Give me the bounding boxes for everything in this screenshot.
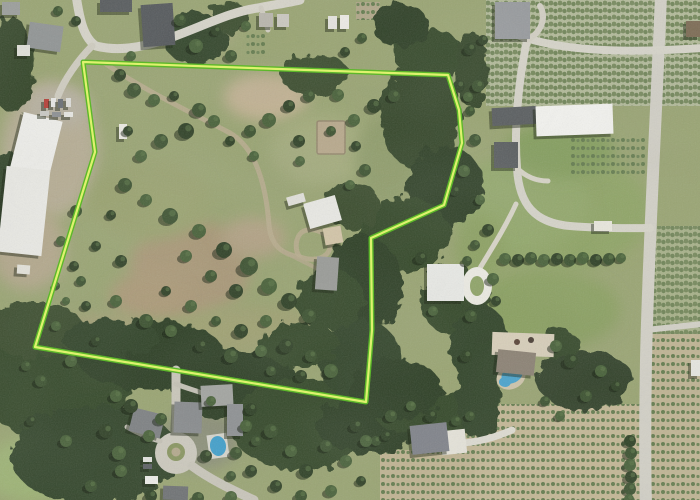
layer-photo-grain <box>0 0 700 500</box>
aerial-imagery-viewport[interactable] <box>0 0 700 500</box>
satellite-image <box>0 0 700 500</box>
mottle-overlay <box>0 0 700 500</box>
